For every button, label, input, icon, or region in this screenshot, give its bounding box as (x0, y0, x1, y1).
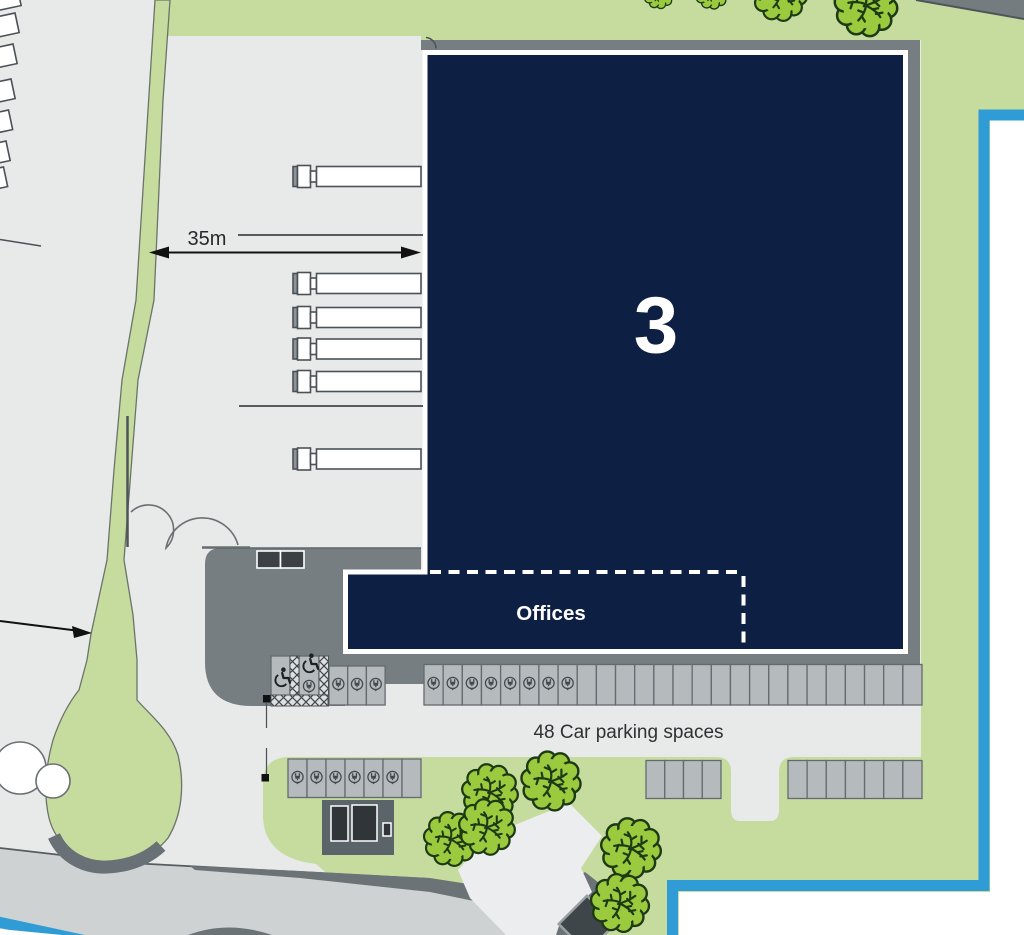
svg-text:3: 3 (634, 281, 679, 370)
svg-text:Offices: Offices (516, 602, 586, 625)
svg-text:35m: 35m (188, 228, 227, 250)
svg-text:48 Car parking spaces: 48 Car parking spaces (533, 722, 723, 743)
